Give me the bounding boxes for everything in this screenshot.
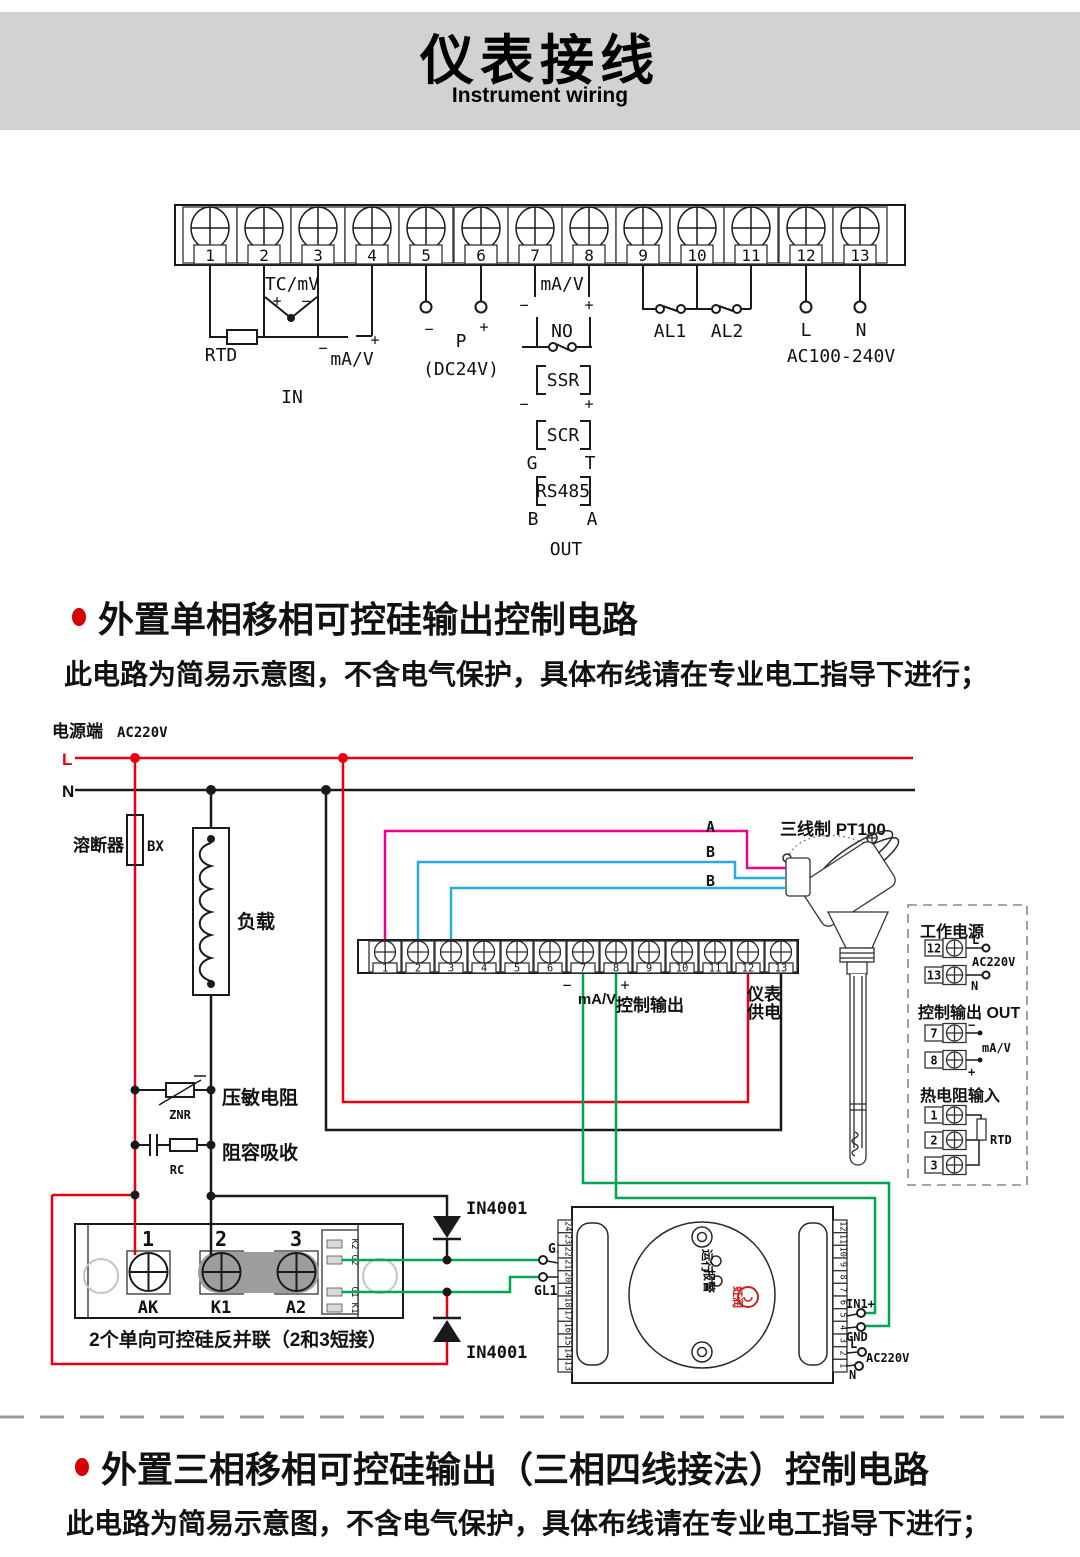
- scr-label: SCR: [547, 425, 580, 446]
- module-terminal-3: 3: [290, 1227, 302, 1251]
- terminal-number: 5: [421, 246, 431, 265]
- panel-terminal: 8: [930, 1054, 937, 1068]
- panel-terminal: 7: [930, 1027, 937, 1041]
- rtd-label: RTD: [205, 345, 238, 366]
- al2-label: AL2: [711, 321, 744, 342]
- gl1-label: GL1: [534, 1284, 558, 1299]
- mav-out-label: mA/V: [540, 274, 584, 295]
- rc-snubber-row: RC 阻容吸收: [131, 1134, 299, 1177]
- brand-label: 虹润: [731, 1286, 745, 1308]
- ssr-label: SSR: [547, 370, 580, 391]
- rs485-b: B: [528, 509, 539, 530]
- section2-header: 外置三相移相可控硅输出（三相四线接法）控制电路: [75, 1441, 929, 1493]
- meter-pin: 15: [563, 1335, 573, 1345]
- panel-l: L: [972, 933, 979, 947]
- terminal-number: 7: [580, 963, 586, 975]
- rs485-label: RS485: [536, 481, 590, 502]
- mav-minus: −: [318, 339, 327, 357]
- terminal-number: 6: [476, 246, 486, 265]
- panel-terminal: 13: [927, 969, 941, 983]
- terminal-number: 11: [709, 963, 722, 975]
- alarm-wiring: AL1 AL2: [643, 265, 751, 342]
- mav-in-label: mA/V: [330, 349, 374, 370]
- meter-pin: 19: [563, 1285, 573, 1295]
- terminal-number: 3: [313, 246, 323, 265]
- panel-terminal: 1: [930, 1109, 937, 1123]
- meter-pin: 20: [563, 1272, 573, 1282]
- panel-out-minus: −: [968, 1018, 975, 1032]
- terminal-number: 8: [584, 246, 594, 265]
- terminal-number: 12: [742, 963, 755, 975]
- in-label: IN: [281, 387, 303, 408]
- mains-l: L: [801, 320, 812, 341]
- section1-header: 外置单相移相可控硅输出控制电路: [72, 591, 638, 643]
- terminal-number: 10: [676, 963, 689, 975]
- panel-out-plus: +: [968, 1065, 975, 1079]
- varistor-row: ZNR 压敏电阻: [131, 1076, 299, 1122]
- terminal-number: 12: [796, 246, 815, 265]
- meter-pin: 10: [838, 1247, 848, 1257]
- al1-label: AL1: [654, 321, 687, 342]
- terminal-number: 13: [775, 963, 788, 975]
- bullet-icon: [72, 608, 86, 626]
- section2-note: 此电路为简易示意图，不含电气保护，具体布线请在专业电工指导下进行；: [66, 1502, 990, 1542]
- dc24v-label: (DC24V): [423, 359, 499, 380]
- terminal-number: 10: [687, 246, 706, 265]
- module-k1-pin: K1: [349, 1303, 359, 1314]
- in1-label: IN1+: [846, 1297, 875, 1311]
- meter-pin: 17: [563, 1310, 573, 1320]
- scr-g: G: [527, 453, 538, 474]
- meter-pin: 23: [563, 1234, 573, 1244]
- rc-label: 阻容吸收: [222, 1141, 298, 1164]
- meter-n-label: N: [849, 1368, 856, 1382]
- mains-n: N: [856, 320, 867, 341]
- diode-bottom: [433, 1320, 461, 1342]
- terminal-number: 5: [514, 963, 520, 975]
- terminal-number: 13: [850, 246, 869, 265]
- mains-wiring: L N AC100-240V: [787, 265, 896, 367]
- rail-l-label: L: [62, 750, 72, 769]
- meter-pin: 8: [838, 1275, 848, 1280]
- out-minus: −: [519, 296, 528, 314]
- pt100-sensor: 三线制 PT100: [780, 819, 904, 1165]
- terminal-number: 1: [382, 963, 388, 975]
- meter-pin: 1: [838, 1363, 848, 1368]
- wire-a-label: A: [706, 818, 715, 836]
- meter-l-label: L: [850, 1337, 857, 1351]
- meter-pin: 9: [838, 1262, 848, 1267]
- meter-ac-label: AC220V: [866, 1351, 909, 1365]
- diode-top-label: IN4001: [466, 1199, 527, 1219]
- meter-pin: 5: [838, 1313, 848, 1318]
- wire-b1-label: B: [706, 843, 715, 861]
- section1-title: 外置单相移相可控硅输出控制电路: [98, 591, 638, 643]
- trigger-meter: 24 23 22 21 20 19 18 17 16 15 14 13 12 1…: [558, 1207, 909, 1383]
- no-label: NO: [551, 321, 573, 342]
- out-plus: +: [584, 296, 593, 314]
- terminal-number: 4: [481, 963, 487, 975]
- output-wiring: mA/V − + NO SSR − + SCR G T RS485 B A OU…: [519, 265, 597, 560]
- strip-plus: +: [620, 976, 629, 994]
- meter-pin: 21: [563, 1259, 573, 1269]
- mains-voltage: AC100-240V: [787, 346, 896, 367]
- thyristor-module: 1 2 3 AK K1 A2 K2 G2 G1 K1 2个单向可控硅反并联（2和…: [75, 1224, 403, 1351]
- meter-pin: 13: [563, 1361, 573, 1371]
- panel-terminal: 2: [930, 1134, 937, 1148]
- module-k2-pin: K2: [349, 1239, 359, 1250]
- terminal-number: 8: [613, 963, 619, 975]
- section2-title: 外置三相移相可控硅输出（三相四线接法）控制电路: [101, 1441, 929, 1493]
- strip-minus: −: [562, 976, 571, 994]
- meter-pin: 12: [838, 1221, 848, 1231]
- meter-supply-label-2: 供电: [746, 1002, 781, 1022]
- circuit-terminal-strip: 1 2 3 4 5 6 7 8 9 10 11 12 13 − mA/V + 控…: [358, 940, 798, 1022]
- p-label: P: [456, 331, 467, 352]
- terminal-number: 1: [205, 246, 215, 265]
- znr-code: ZNR: [169, 1108, 191, 1122]
- load-label: 负载: [237, 910, 275, 933]
- meter-supply-label-1: 仪表: [746, 984, 782, 1004]
- bullet-icon: [75, 1458, 89, 1476]
- diode-top: [433, 1216, 461, 1238]
- meter-pin: 18: [563, 1297, 573, 1307]
- rail-n-label: N: [62, 782, 74, 801]
- panel-mav: mA/V: [982, 1041, 1011, 1055]
- meter-pin: 11: [838, 1234, 848, 1244]
- terminal-number: 9: [638, 246, 648, 265]
- varistor-symbol: [166, 1083, 194, 1097]
- module-terminal-2: 2: [215, 1227, 227, 1251]
- strip-mav: mA/V: [578, 991, 616, 1008]
- module-terminal-1: 1: [142, 1227, 154, 1251]
- panel-n: N: [971, 979, 978, 993]
- meter-pin: 14: [563, 1348, 573, 1358]
- wire-b2-label: B: [706, 872, 715, 890]
- fuse-code: BX: [147, 839, 164, 855]
- module-a2-label: A2: [286, 1298, 306, 1318]
- meter-pin: 24: [563, 1221, 573, 1231]
- scr-t: T: [585, 453, 596, 474]
- meter-pin: 22: [563, 1247, 573, 1257]
- control-output-label: 控制输出: [616, 995, 684, 1015]
- panel-terminal: 3: [930, 1159, 937, 1173]
- rtd-resistor: [227, 330, 257, 344]
- terminal-number: 9: [646, 963, 652, 975]
- terminal-reference-panel: 工作电源 12 13 L AC220V N 控制输出 OUT 7 8 − mA/…: [908, 905, 1027, 1185]
- wiring-diagram: 1 2 3 4 5 6 7 8 9 10 11 12 13 TC/mV + − …: [0, 0, 1080, 1557]
- ssr-minus: −: [519, 395, 528, 413]
- terminal-number: 7: [530, 246, 540, 265]
- terminal-number: 2: [259, 246, 269, 265]
- main-terminal-strip: 1 2 3 4 5 6 7 8 9 10 11 12 13: [175, 205, 905, 265]
- power-voltage-label: AC220V: [117, 725, 168, 741]
- diode-bottom-label: IN4001: [466, 1343, 527, 1363]
- terminal-number: 2: [415, 963, 421, 975]
- p-minus: −: [424, 320, 433, 338]
- terminal-number: 3: [448, 963, 454, 975]
- p-plus: +: [479, 318, 488, 336]
- module-caption: 2个单向可控硅反并联（2和3短接）: [89, 1328, 387, 1351]
- mav-plus: +: [370, 331, 379, 349]
- meter-pin: 7: [838, 1287, 848, 1292]
- tc-plus: +: [272, 292, 281, 310]
- input-wiring: TC/mV + − RTD − mA/V + IN: [205, 265, 380, 408]
- panel-rtd-title: 热电阻输入: [920, 1086, 1000, 1105]
- module-ak-label: AK: [138, 1298, 159, 1318]
- rc-resistor: [170, 1139, 197, 1151]
- meter-pin: 2: [838, 1351, 848, 1356]
- alarm-label: 报警: [702, 1269, 717, 1293]
- power-end-label: 电源端: [52, 721, 103, 741]
- section1-note: 此电路为简易示意图，不含电气保护，具体布线请在专业电工指导下进行；: [64, 653, 988, 693]
- znr-label: 压敏电阻: [222, 1086, 298, 1109]
- power-rails: 电源端 AC220V L N: [52, 721, 915, 801]
- panel-ac: AC220V: [972, 955, 1015, 969]
- sensor-wires: A B B: [385, 818, 786, 941]
- ssr-plus: +: [584, 395, 593, 413]
- panel-terminal: 12: [927, 942, 941, 956]
- meter-pin: 16: [563, 1323, 573, 1333]
- tc-minus: −: [301, 292, 310, 310]
- terminal-number: 6: [547, 963, 553, 975]
- rc-code: RC: [170, 1163, 184, 1177]
- panel-rtd-resistor: [977, 1119, 986, 1140]
- dc24v-wiring: − + P (DC24V): [421, 265, 499, 380]
- out-label: OUT: [550, 539, 583, 560]
- terminal-number: 4: [367, 246, 377, 265]
- module-k1-label: K1: [211, 1298, 231, 1318]
- terminal-number: 11: [741, 246, 760, 265]
- rs485-a: A: [587, 509, 598, 530]
- fuse-label: 溶断器: [73, 835, 125, 855]
- panel-rtd: RTD: [990, 1133, 1012, 1147]
